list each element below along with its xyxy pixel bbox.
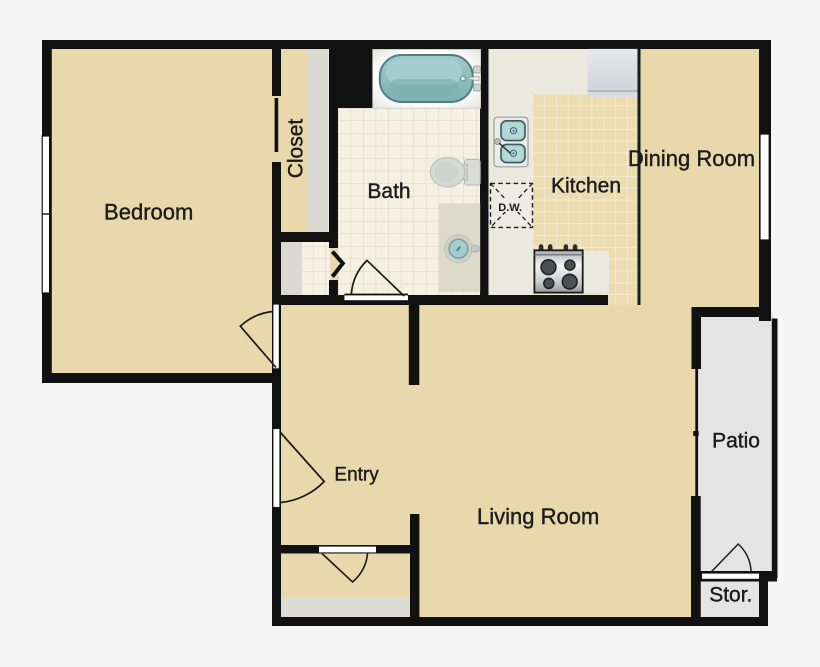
svg-text:D.W.: D.W. [498,202,522,214]
svg-text:Kitchen: Kitchen [551,175,621,198]
svg-text:Stor.: Stor. [709,584,752,607]
svg-text:Bedroom: Bedroom [104,200,193,225]
svg-text:Closet: Closet [285,119,308,179]
svg-text:Patio: Patio [712,430,760,453]
svg-text:Dining Room: Dining Room [628,146,755,171]
svg-text:Bath: Bath [367,180,410,203]
svg-text:Entry: Entry [334,465,379,486]
svg-text:Living Room: Living Room [477,504,599,529]
